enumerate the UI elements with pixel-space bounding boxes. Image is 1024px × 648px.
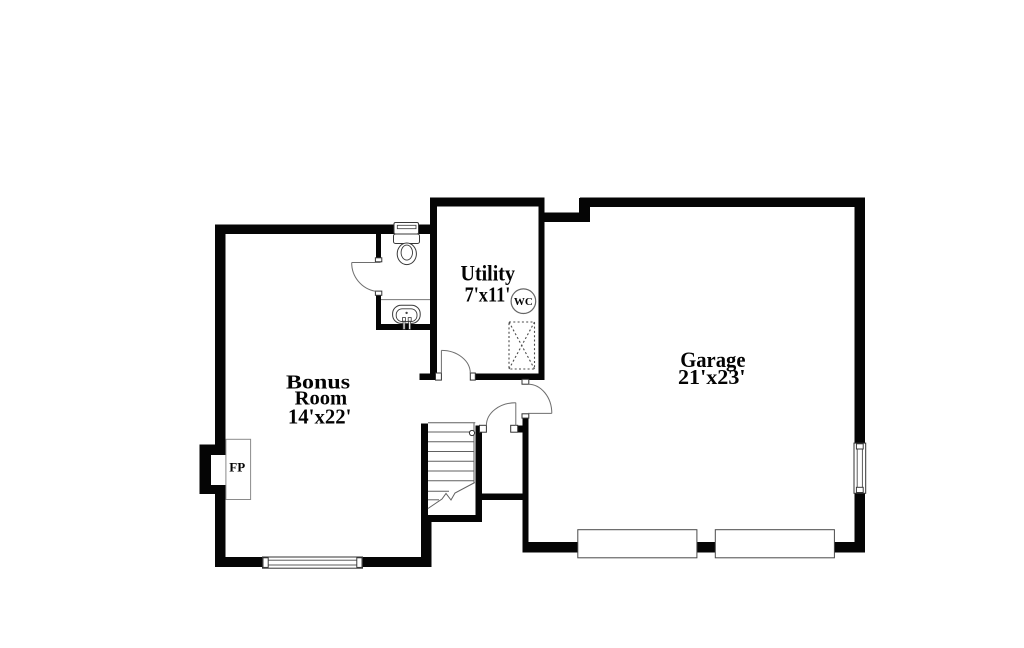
svg-text:WC: WC [514,296,533,308]
svg-text:7'x11': 7'x11' [465,282,511,306]
svg-text:14'x22': 14'x22' [288,404,352,428]
svg-text:21'x23': 21'x23' [678,365,746,389]
svg-text:FP: FP [229,460,245,475]
